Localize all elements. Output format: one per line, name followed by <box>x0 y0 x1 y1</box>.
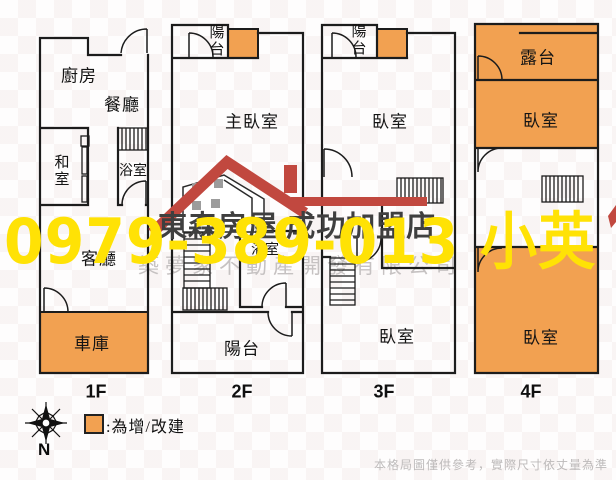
legend-addition-note: :為增/改建 <box>106 413 185 437</box>
room-label-balcony-3f: 陽台 <box>348 23 369 57</box>
room-label-balcony-front-2f: 陽台 <box>206 24 227 58</box>
room-label-master-bedroom: 主臥室 <box>225 108 279 133</box>
floorplan-canvas: 築夢家不動產開發有限公司 <box>0 0 616 480</box>
room-label-bedroom-lo-4f: 臥室 <box>523 324 559 349</box>
door-rear-balcony-2f <box>268 312 292 336</box>
compass-north-label: N <box>38 440 50 460</box>
legend-addition-swatch <box>84 414 104 434</box>
door-bedroom-3f <box>324 149 352 177</box>
floor-label-3f: 3F <box>373 382 394 403</box>
floor-label-4f: 4F <box>520 382 541 403</box>
door-entry-1f <box>121 29 147 53</box>
addition-area-3f <box>377 29 407 58</box>
room-label-bath-1f: 浴室 <box>119 160 147 180</box>
phone-watermark: 0979-389-013 小英 <box>4 191 596 281</box>
room-label-kitchen: 廚房 <box>61 62 97 87</box>
room-label-garage: 車庫 <box>74 330 110 355</box>
room-label-bedroom-up-4f: 臥室 <box>523 107 559 132</box>
floor-label-1f: 1F <box>85 382 106 403</box>
room-label-bedroom-up-3f: 臥室 <box>372 108 408 133</box>
stairs-1f <box>118 128 148 150</box>
disclaimer-text: 本格局圖僅供參考，實際尺寸依丈量為準 <box>374 456 608 473</box>
door-landing-4f <box>478 148 502 172</box>
floor-label-2f: 2F <box>231 382 252 403</box>
room-label-tatami: 和室 <box>51 154 72 188</box>
room-label-balcony-rear-2f: 陽台 <box>224 335 260 360</box>
room-label-terrace: 露台 <box>520 44 556 69</box>
addition-area-2f <box>228 29 258 58</box>
logo-fragment-right-edge <box>608 205 616 228</box>
door-bath-2f <box>262 283 286 307</box>
logo-chimney <box>284 165 297 193</box>
room-label-dining: 餐廳 <box>104 91 140 116</box>
door-garage-1f <box>44 288 68 312</box>
door-terrace-4f <box>478 56 502 80</box>
room-label-bedroom-lo-3f: 臥室 <box>379 323 415 348</box>
